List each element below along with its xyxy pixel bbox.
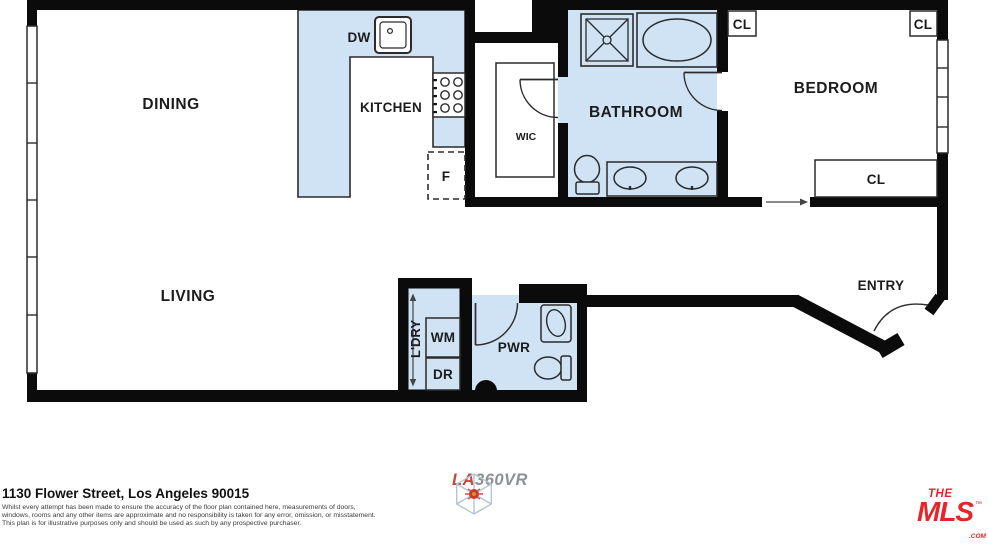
floor-plan-page: DINING KITCHEN LIVING WIC BATHROOM BEDRO… [0, 0, 988, 548]
powder-toilet [535, 356, 572, 380]
label-dishwasher: DW [347, 30, 370, 45]
themls-mls: MLS [917, 496, 973, 528]
la360vr-cube-icon [452, 471, 496, 517]
label-closet-bedroom: CL [867, 172, 886, 187]
label-closet-hall: CL [733, 17, 752, 32]
disclaimer-line-3: This plan is for illustrative purposes o… [2, 520, 376, 528]
label-washer: WM [431, 330, 456, 345]
bathroom-toilet [575, 156, 600, 195]
room-label-bathroom: BATHROOM [589, 104, 683, 121]
label-dryer: DR [433, 367, 453, 382]
room-label-powder: PWR [498, 340, 530, 355]
themls-tm: ™ [975, 501, 982, 508]
room-label-entry: ENTRY [858, 278, 905, 293]
bathtub [637, 13, 717, 67]
left-window [27, 26, 37, 373]
bedroom-window [937, 40, 948, 153]
wic-closet [496, 63, 558, 177]
label-closet-bedroom-top: CL [914, 17, 933, 32]
disclaimer-line-2: windows, rooms and any other items are a… [2, 512, 376, 520]
room-label-kitchen: KITCHEN [360, 100, 422, 115]
room-label-wic: WIC [516, 131, 537, 143]
disclaimer-text: Whilst every attempt has been made to en… [2, 504, 376, 527]
bedroom-sliding-door-arrow [766, 199, 808, 206]
room-label-dining: DINING [142, 96, 199, 113]
themls-com: .COM [969, 533, 986, 540]
property-address: 1130 Flower Street, Los Angeles 90015 [2, 486, 249, 501]
label-fridge: F [442, 169, 451, 184]
stove [433, 73, 465, 117]
room-label-bedroom: BEDROOM [794, 80, 878, 97]
room-label-laundry: L'DRY [408, 320, 423, 358]
bathroom-vanity [607, 162, 717, 196]
room-label-living: LIVING [161, 288, 216, 305]
dishwasher-sink [375, 17, 411, 53]
themls-logo: THE MLS ™ .COM [917, 487, 987, 547]
entry-door-arc [874, 304, 928, 331]
la360vr-logo: LA360VR [452, 471, 528, 490]
floor-plan: DINING KITCHEN LIVING WIC BATHROOM BEDRO… [0, 0, 988, 548]
shower [581, 14, 633, 66]
disclaimer-line-1: Whilst every attempt has been made to en… [2, 504, 376, 512]
powder-sink [541, 305, 571, 342]
